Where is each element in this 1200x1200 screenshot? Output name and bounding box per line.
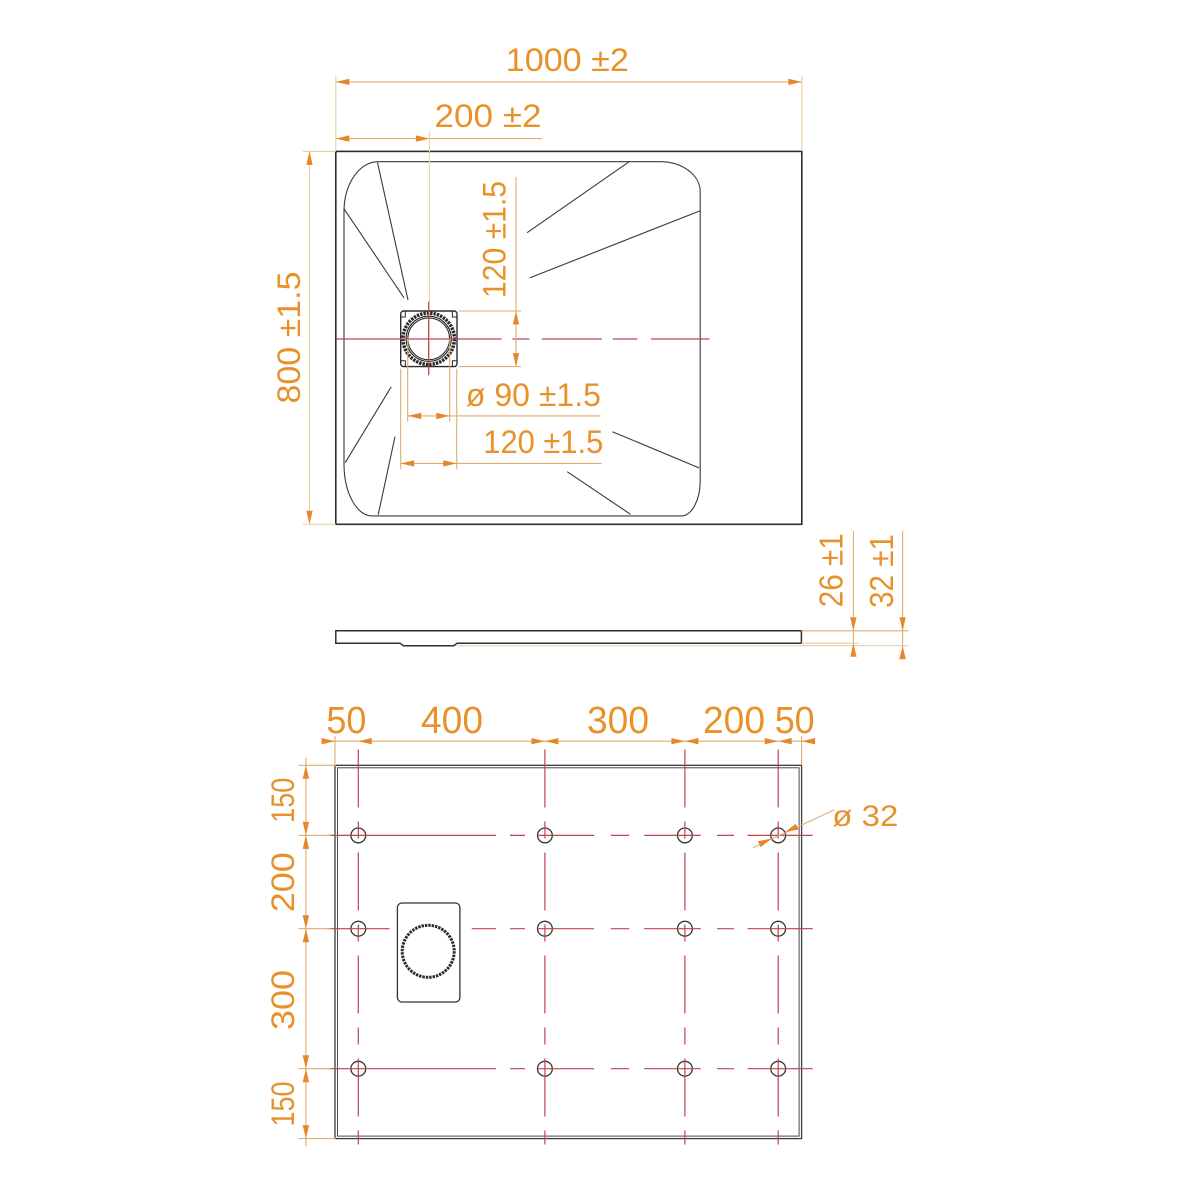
svg-text:300: 300 [265, 970, 301, 1030]
svg-text:32 ±1: 32 ±1 [864, 534, 901, 608]
svg-text:800 ±1.5: 800 ±1.5 [271, 272, 307, 404]
svg-text:120 ±1.5: 120 ±1.5 [477, 181, 513, 298]
svg-text:150: 150 [265, 1082, 301, 1127]
svg-text:150: 150 [265, 778, 301, 823]
svg-text:50: 50 [775, 700, 815, 742]
svg-text:200: 200 [265, 852, 301, 912]
svg-text:50: 50 [326, 700, 366, 742]
svg-text:300: 300 [587, 700, 649, 742]
svg-text:400: 400 [421, 700, 483, 742]
svg-text:26 ±1: 26 ±1 [814, 533, 851, 607]
svg-text:ø 90 ±1.5: ø 90 ±1.5 [466, 377, 601, 413]
svg-text:ø 32: ø 32 [832, 800, 898, 833]
svg-text:1000 ±2: 1000 ±2 [506, 42, 629, 78]
svg-text:120 ±1.5: 120 ±1.5 [483, 424, 603, 460]
svg-text:200 ±2: 200 ±2 [435, 98, 542, 134]
svg-text:200: 200 [703, 700, 765, 742]
